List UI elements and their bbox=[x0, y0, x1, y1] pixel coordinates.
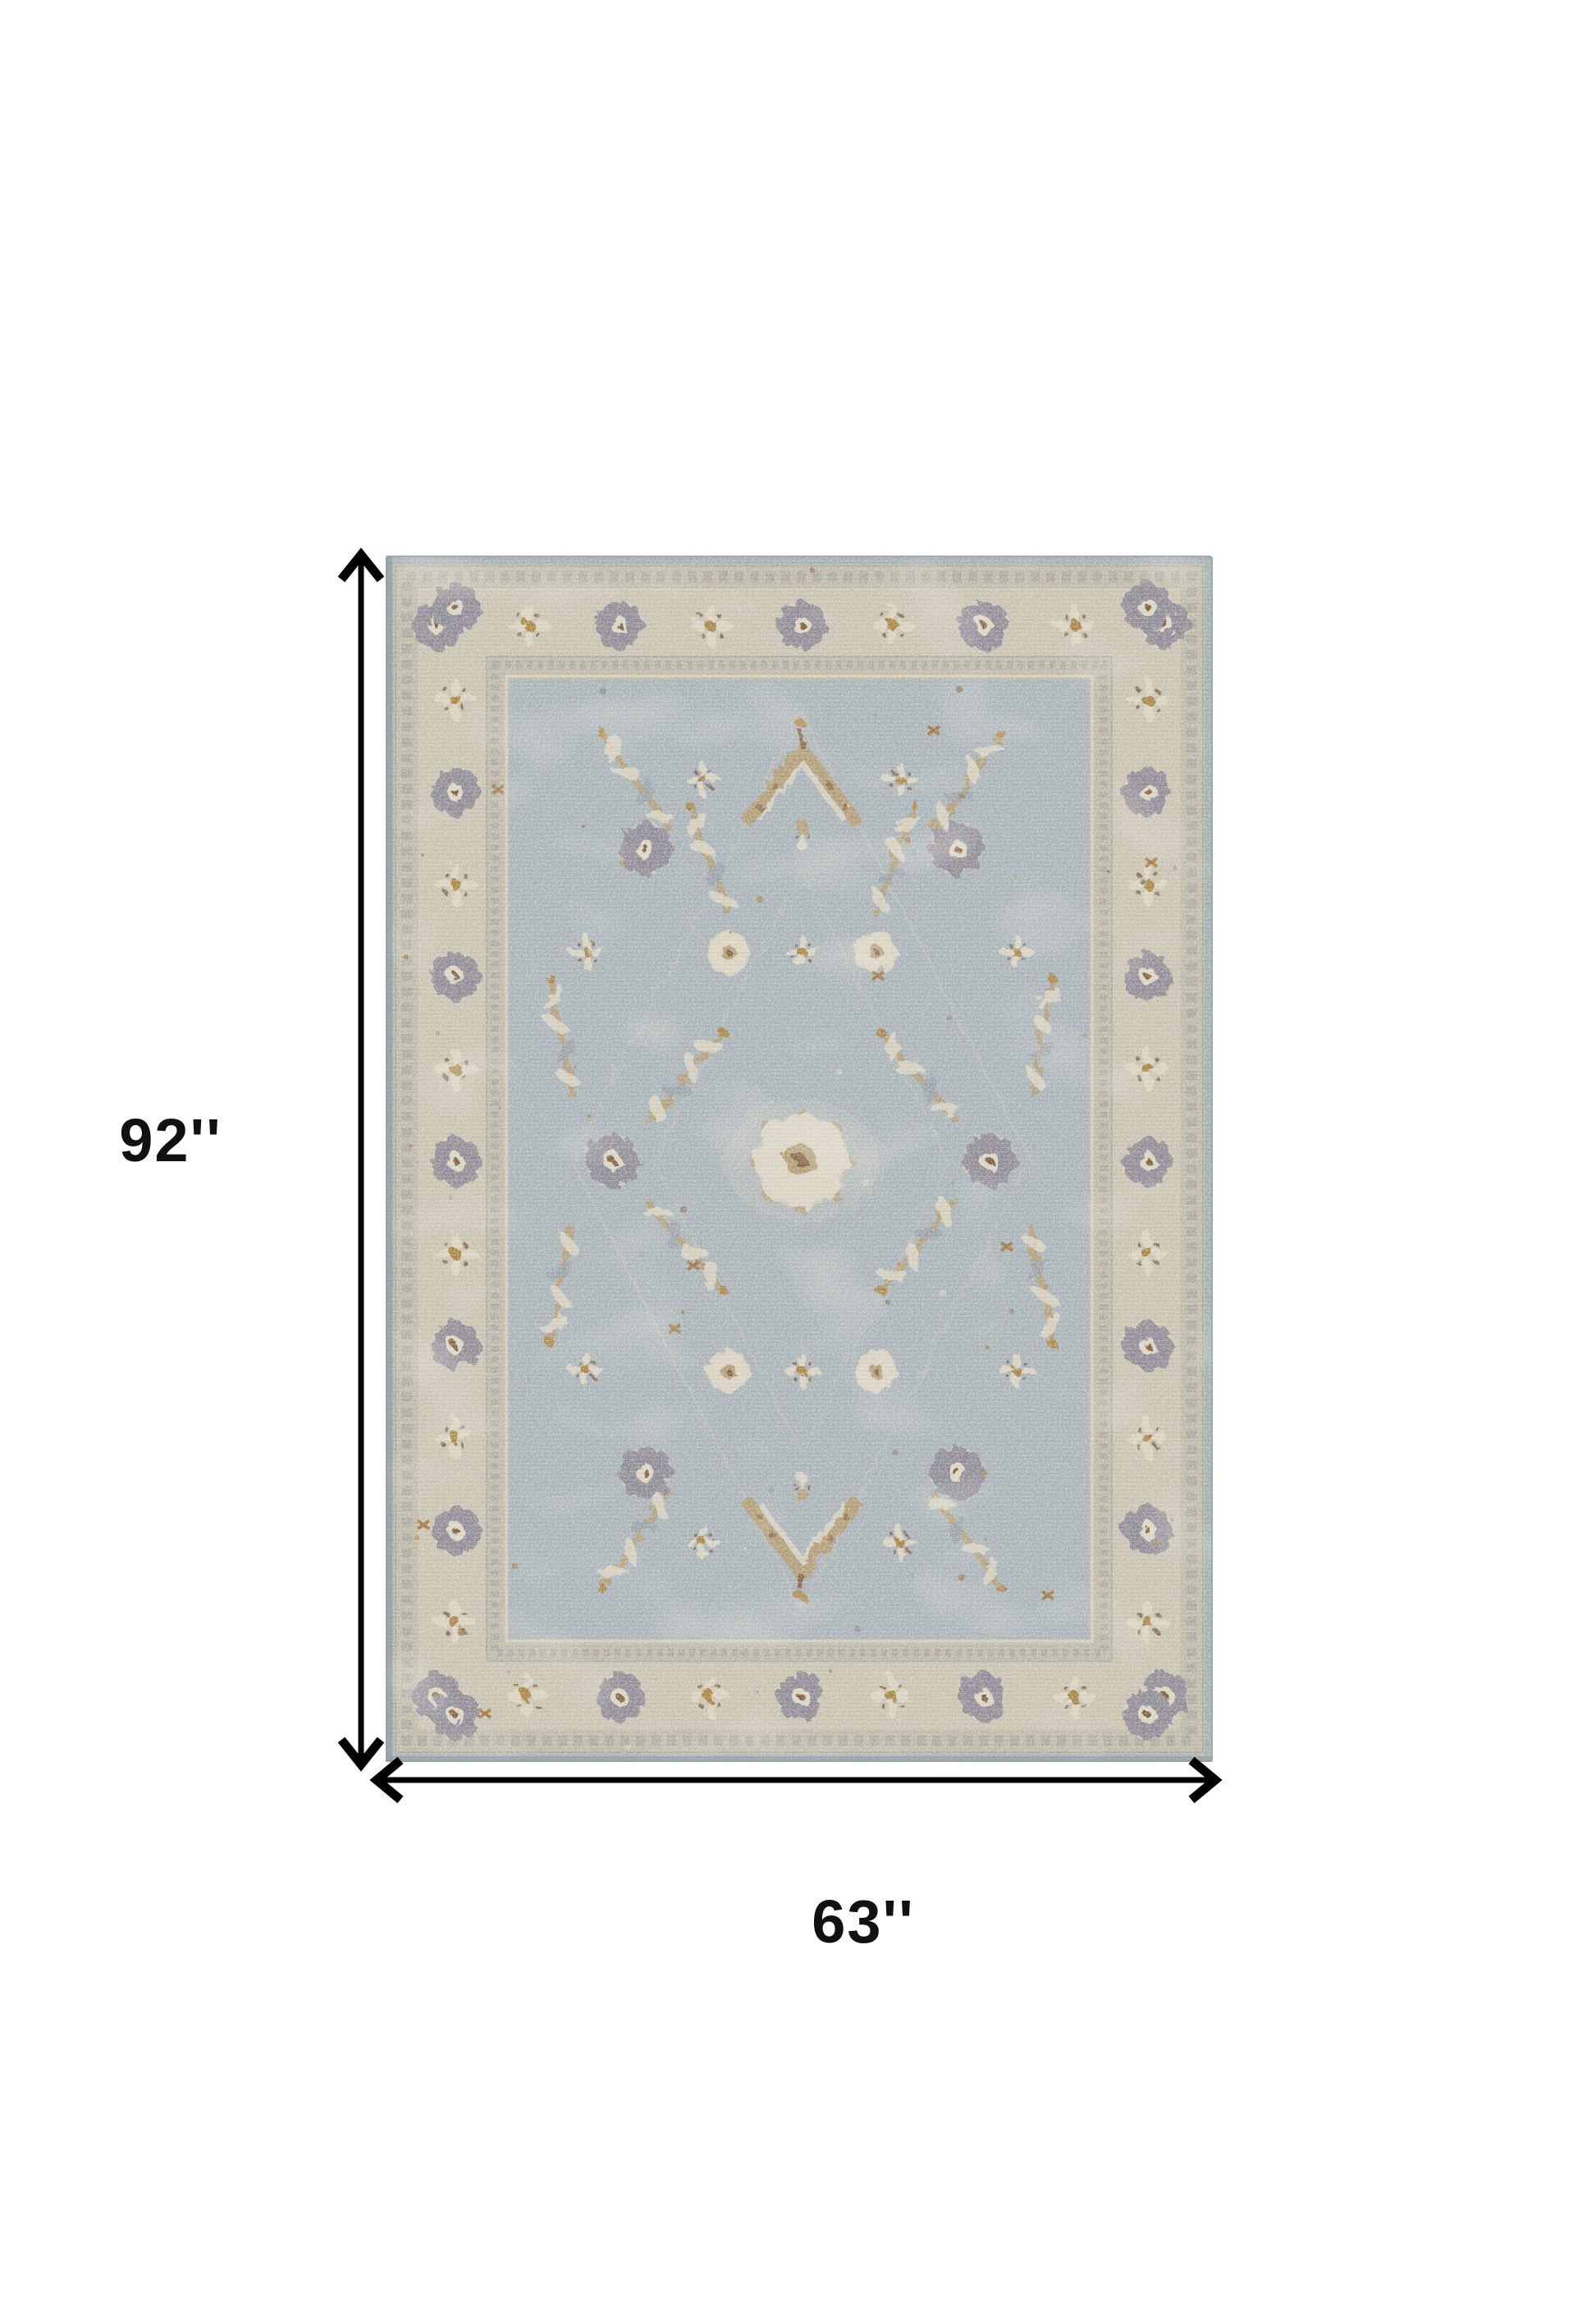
diagram-canvas: 92'' 63'' bbox=[0, 0, 1596, 2320]
rug-image bbox=[386, 556, 1213, 1762]
product-dimension-diagram: 92'' 63'' bbox=[0, 0, 1596, 2320]
width-dimension-label: 63'' bbox=[812, 1888, 915, 1956]
height-dimension-label: 92'' bbox=[119, 1106, 222, 1174]
